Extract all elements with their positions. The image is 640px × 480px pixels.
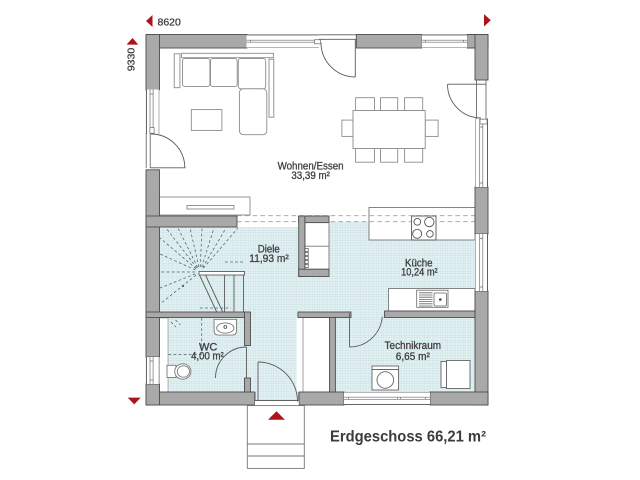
- svg-text:8620: 8620: [158, 17, 182, 29]
- svg-text:33,39 m²: 33,39 m²: [291, 170, 330, 182]
- svg-text:9330: 9330: [126, 48, 138, 72]
- svg-text:6,65 m²: 6,65 m²: [396, 351, 430, 363]
- svg-text:4,00 m²: 4,00 m²: [191, 351, 224, 363]
- svg-text:Technikraum: Technikraum: [385, 340, 442, 352]
- svg-text:11,93 m²: 11,93 m²: [249, 253, 289, 265]
- svg-text:Erdgeschoss 66,21 m²: Erdgeschoss 66,21 m²: [330, 429, 486, 446]
- svg-text:10,24 m²: 10,24 m²: [401, 267, 438, 279]
